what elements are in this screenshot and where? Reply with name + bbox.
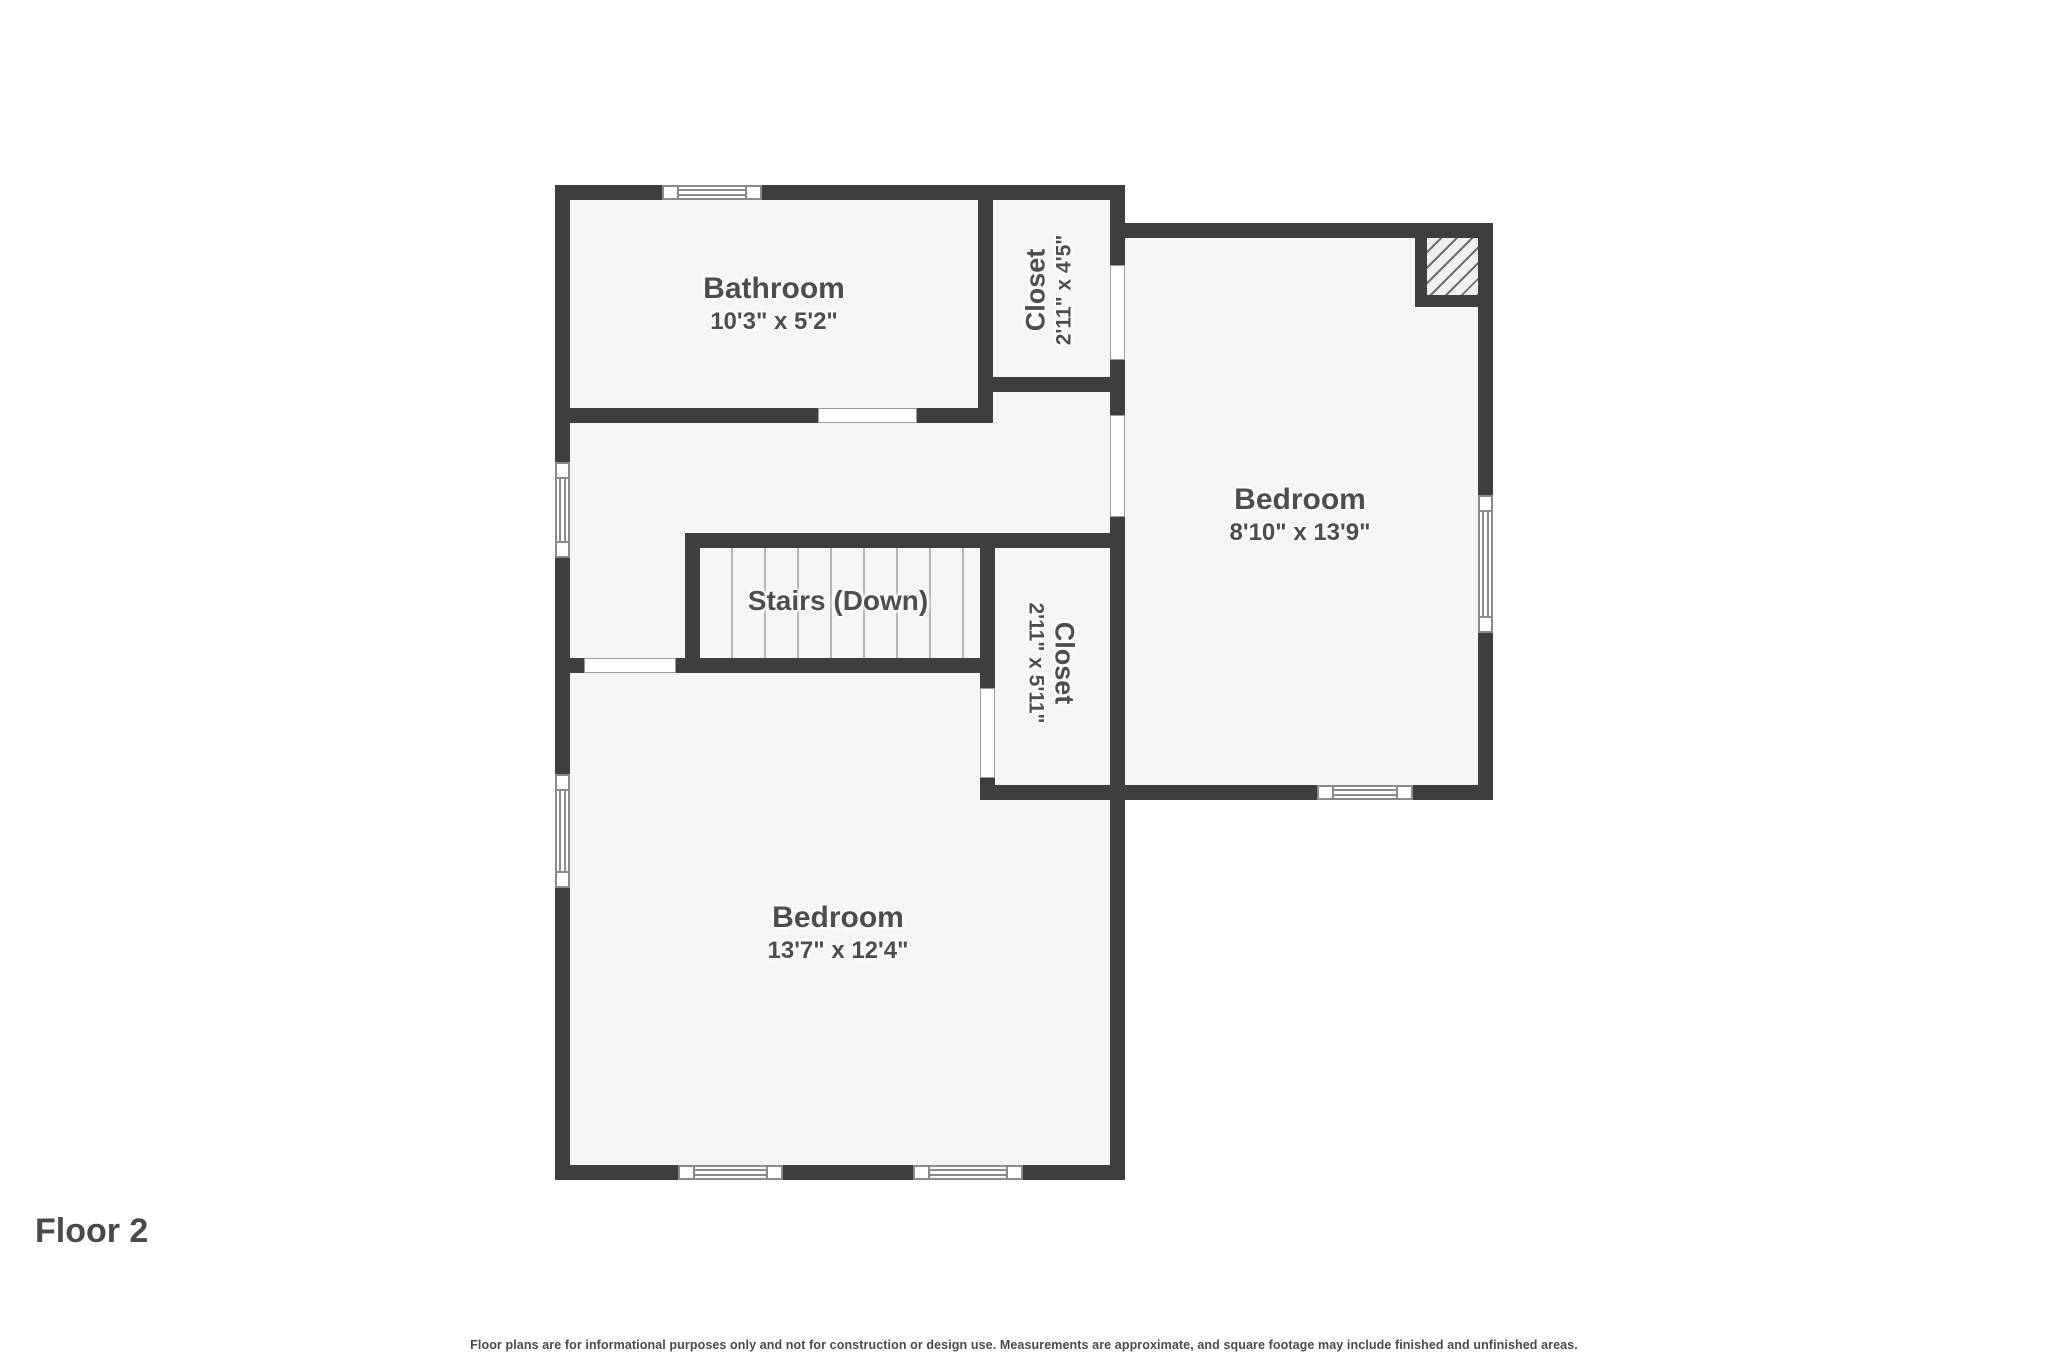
chimney-hatch xyxy=(1427,238,1478,295)
door-opening-bedroom-right xyxy=(1110,415,1125,517)
chimney-wall-bottom xyxy=(1415,295,1478,307)
window-bedroom-left-south-2 xyxy=(913,1165,1023,1180)
door-opening-bedroom-left xyxy=(584,658,676,673)
wall-bedroom-right-bottom xyxy=(980,785,1493,800)
closet-top-dimensions: 2'11" x 4'5" xyxy=(1052,235,1078,346)
window-bathroom-top xyxy=(662,185,762,200)
closet-top-name: Closet xyxy=(1020,235,1052,346)
floor-title: Floor 2 xyxy=(35,1212,148,1251)
bedroom-left-name: Bedroom xyxy=(768,900,909,936)
wall-divider-right-upper xyxy=(1110,185,1125,265)
bedroom-right-dimensions: 8'10" x 13'9" xyxy=(1230,518,1371,548)
wall-bedroom-left-bottom xyxy=(555,1165,1125,1180)
closet-bottom-name: Closet xyxy=(1048,602,1080,723)
window-hallway-left xyxy=(555,462,570,558)
wall-divider-right-lower xyxy=(1110,517,1125,800)
room-label-bathroom: Bathroom 10'3" x 5'2" xyxy=(703,271,845,337)
wall-bedroom-right-top xyxy=(1110,223,1493,238)
window-bedroom-left-west xyxy=(555,774,570,888)
door-opening-bathroom xyxy=(818,408,917,423)
wall-closet-top-bottom xyxy=(978,377,1125,392)
wall-bedroom-left-right xyxy=(1110,800,1125,1180)
wall-stairs-top xyxy=(685,533,1125,548)
closet-bottom-dimensions: 2'11" x 5'11" xyxy=(1022,602,1048,723)
room-label-bedroom-right: Bedroom 8'10" x 13'9" xyxy=(1230,482,1371,548)
floor-plan-page: Bathroom 10'3" x 5'2" Closet 2'11" x 4'5… xyxy=(0,0,2048,1365)
window-bedroom-right-south xyxy=(1317,785,1413,800)
stairs-label: Stairs (Down) xyxy=(748,585,928,617)
disclaimer-text: Floor plans are for informational purpos… xyxy=(0,1338,2048,1352)
room-label-closet-bottom: Closet 2'11" x 5'11" xyxy=(1022,602,1081,723)
wall-exterior-top xyxy=(555,185,1125,200)
wall-stairs-left xyxy=(685,533,700,673)
bedroom-right-name: Bedroom xyxy=(1230,482,1371,518)
window-bedroom-left-south-1 xyxy=(678,1165,783,1180)
bedroom-left-dimensions: 13'7" x 12'4" xyxy=(768,936,909,966)
bathroom-name: Bathroom xyxy=(703,271,845,307)
room-label-bedroom-left: Bedroom 13'7" x 12'4" xyxy=(768,900,909,966)
door-opening-closet-bottom xyxy=(980,688,995,778)
door-opening-closet-top xyxy=(1110,265,1125,360)
window-bedroom-right-east xyxy=(1478,495,1493,633)
bathroom-dimensions: 10'3" x 5'2" xyxy=(703,307,845,337)
wall-bathroom-south xyxy=(555,408,993,423)
room-label-closet-top: Closet 2'11" x 4'5" xyxy=(1020,235,1079,346)
wall-exterior-left xyxy=(555,185,570,1180)
